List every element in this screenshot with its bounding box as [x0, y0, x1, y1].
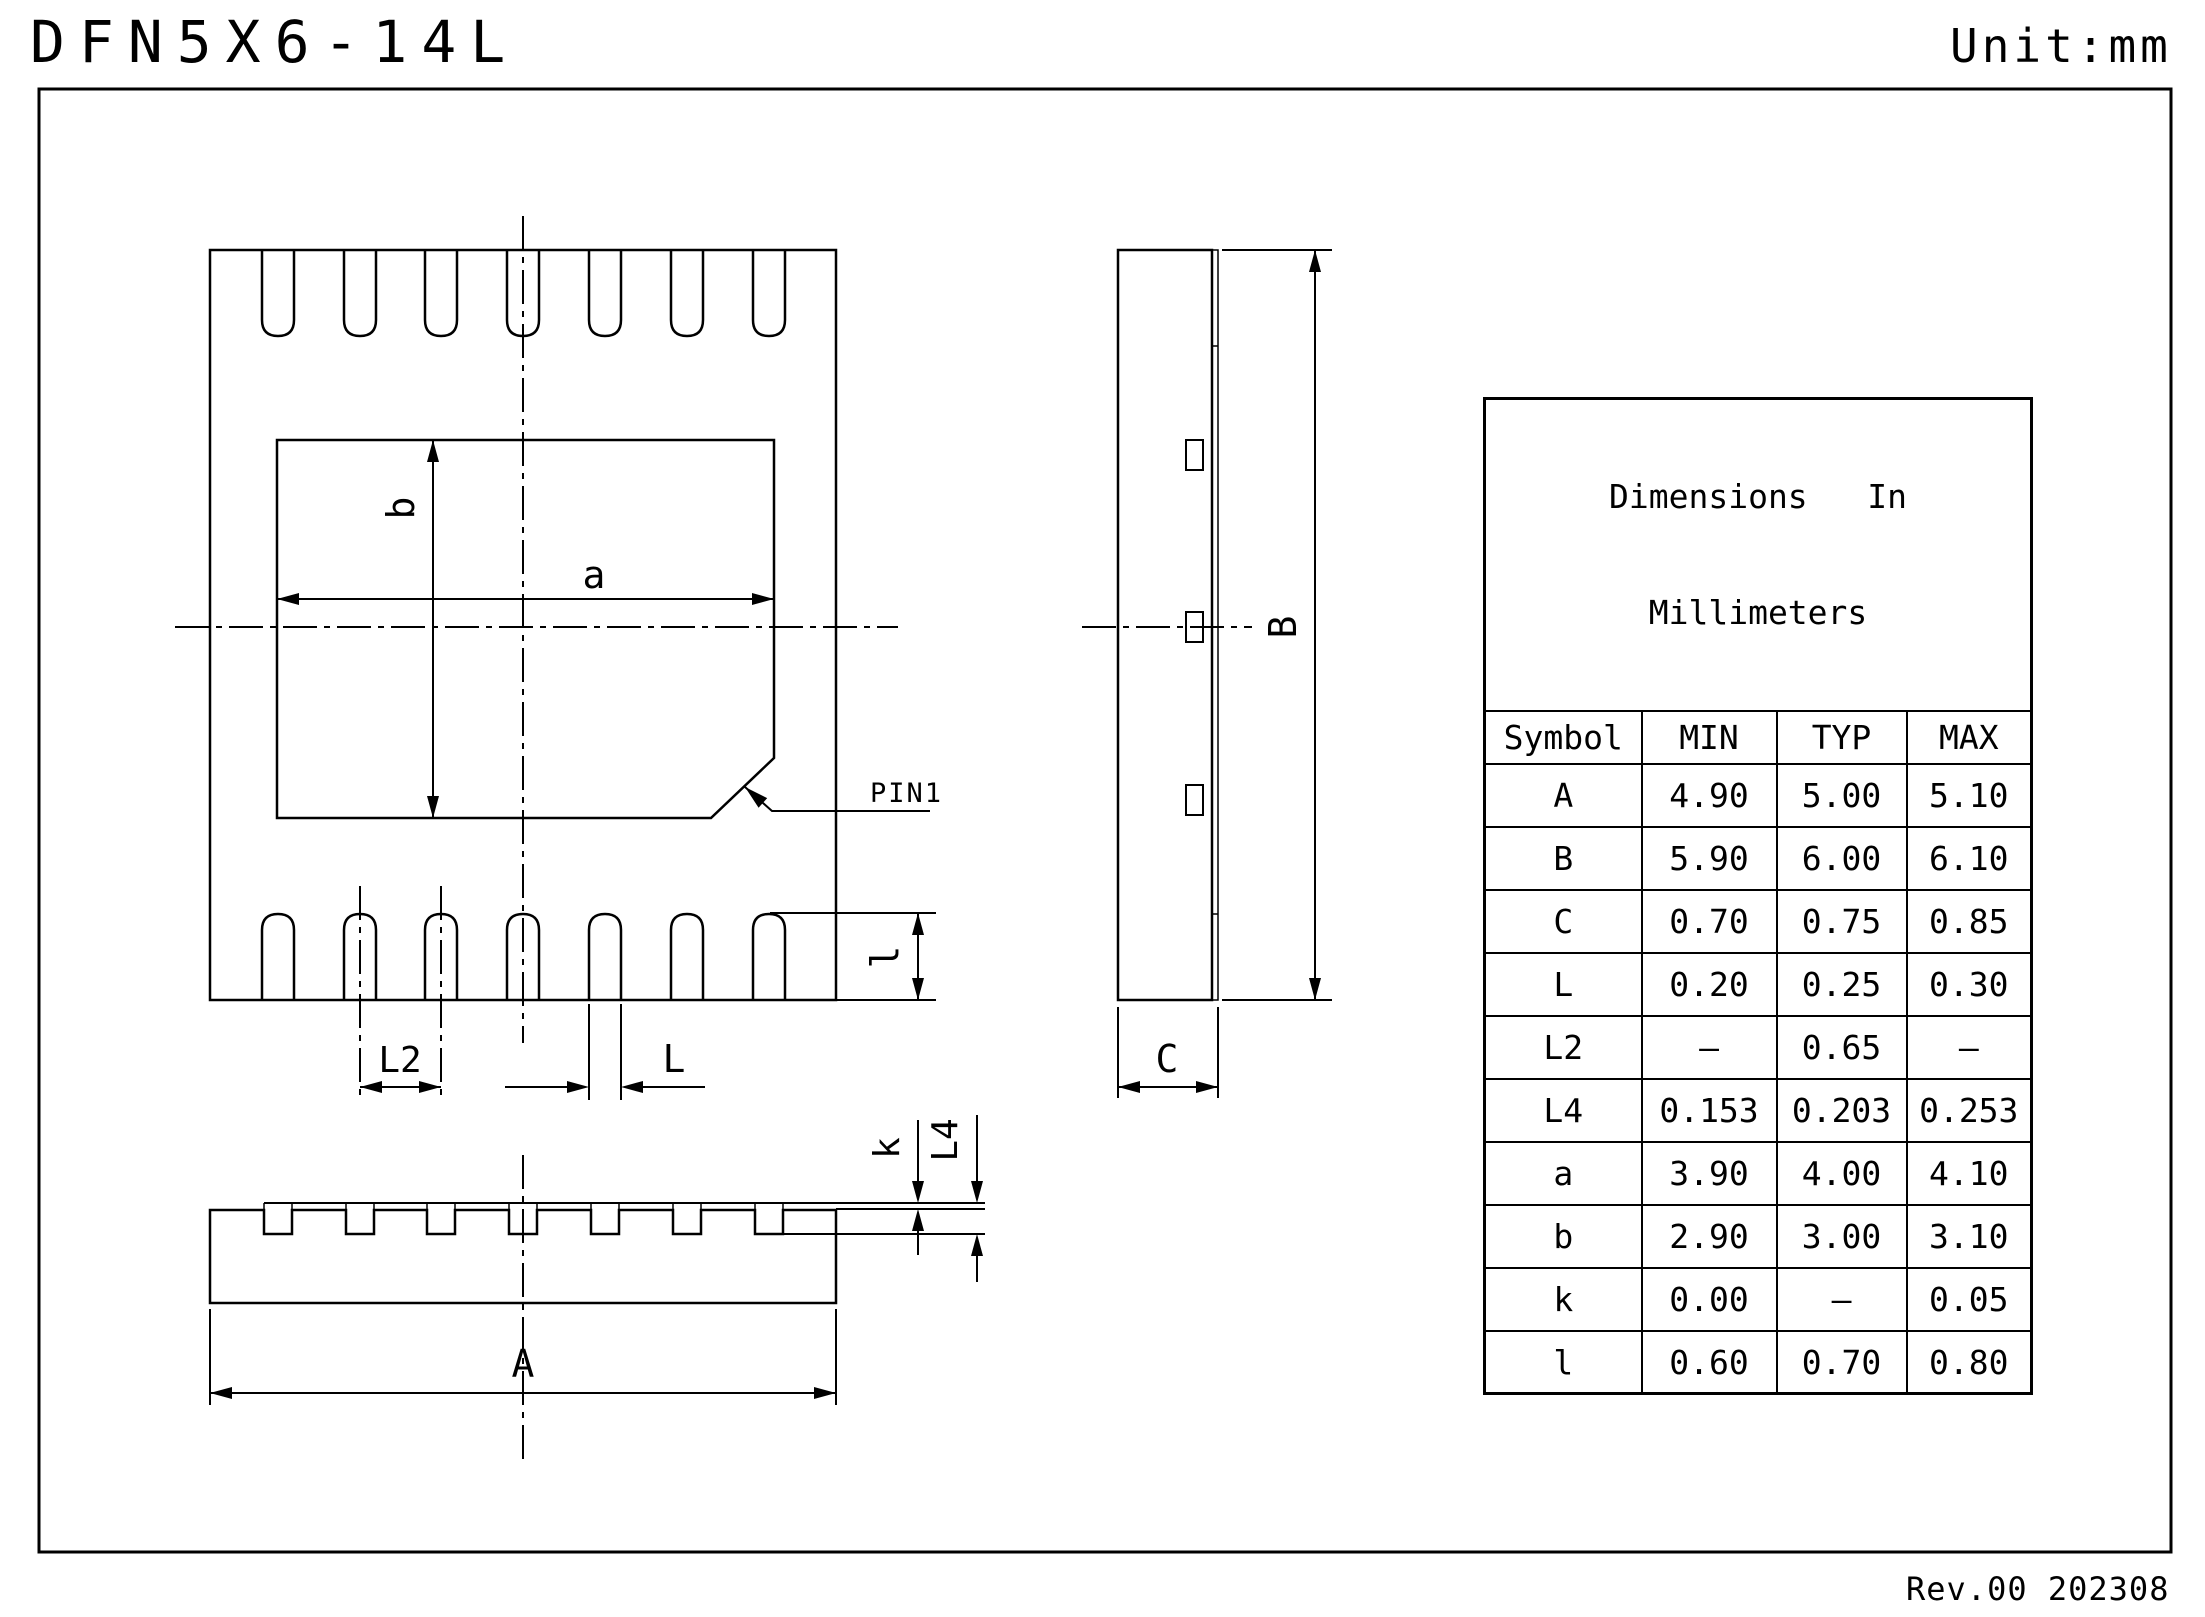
header-min: MIN	[1642, 711, 1777, 764]
dim-label-k: k	[867, 1137, 908, 1159]
cell-symbol: L	[1485, 953, 1642, 1016]
cell-max: 5.10	[1907, 764, 2032, 827]
dim-label-B: B	[1261, 616, 1305, 639]
cell-min: 0.70	[1642, 890, 1777, 953]
cell-max: 0.253	[1907, 1079, 2032, 1142]
dim-b-upper: B	[1222, 250, 1332, 1000]
cell-min: 0.60	[1642, 1331, 1777, 1394]
cell-symbol: l	[1485, 1331, 1642, 1394]
cell-typ: 5.00	[1777, 764, 1907, 827]
dim-label-l-width: L	[663, 1037, 686, 1081]
cell-typ: 0.203	[1777, 1079, 1907, 1142]
cell-symbol: b	[1485, 1205, 1642, 1268]
cell-max: 6.10	[1907, 827, 2032, 890]
cell-symbol: L4	[1485, 1079, 1642, 1142]
dim-b: b	[379, 440, 439, 818]
cell-typ: 6.00	[1777, 827, 1907, 890]
table-title-line2: Millimeters	[1486, 594, 2030, 632]
dim-l2: L2	[360, 1040, 441, 1093]
side-view: B C	[1082, 250, 1332, 1098]
table-row: k 0.00 – 0.05	[1485, 1268, 2032, 1331]
pin1-label: PIN1	[870, 778, 943, 809]
dim-label-b: b	[379, 497, 423, 520]
exposed-pad	[277, 440, 774, 818]
cell-min: 3.90	[1642, 1142, 1777, 1205]
cell-symbol: L2	[1485, 1016, 1642, 1079]
cell-min: 5.90	[1642, 827, 1777, 890]
dim-label-l-length: l	[863, 946, 907, 969]
cell-typ: 0.75	[1777, 890, 1907, 953]
table-title-line1: Dimensions In	[1486, 478, 2030, 516]
table-row: B 5.90 6.00 6.10	[1485, 827, 2032, 890]
table-header-row: Symbol MIN TYP MAX	[1485, 711, 2032, 764]
table-row: L 0.20 0.25 0.30	[1485, 953, 2032, 1016]
cell-min: 2.90	[1642, 1205, 1777, 1268]
pin1-callout: PIN1	[745, 778, 943, 811]
dim-l-width: L	[505, 1004, 705, 1100]
dim-label-C: C	[1156, 1037, 1179, 1081]
cell-min: 4.90	[1642, 764, 1777, 827]
dim-c: C	[1118, 1007, 1218, 1098]
dimensions-table: Dimensions In Millimeters Symbol MIN TYP…	[1483, 397, 2033, 1395]
cell-max: 0.05	[1907, 1268, 2032, 1331]
header-symbol: Symbol	[1485, 711, 1642, 764]
table-row: L4 0.153 0.203 0.253	[1485, 1079, 2032, 1142]
revision-label: Rev.00 202308	[1906, 1570, 2169, 1608]
table-row: b 2.90 3.00 3.10	[1485, 1205, 2032, 1268]
cell-min: –	[1642, 1016, 1777, 1079]
side-lead-profile	[1186, 440, 1203, 470]
table-title-row: Dimensions In Millimeters	[1485, 399, 2032, 711]
unit-label: Unit:mm	[1950, 19, 2172, 73]
cell-typ: –	[1777, 1268, 1907, 1331]
cell-typ: 3.00	[1777, 1205, 1907, 1268]
cell-symbol: a	[1485, 1142, 1642, 1205]
cell-max: 0.30	[1907, 953, 2032, 1016]
dim-l4: L4	[925, 1115, 983, 1282]
cell-max: 0.85	[1907, 890, 2032, 953]
datasheet-page: DFN5X6-14L Unit:mm Rev.00 202308	[0, 0, 2205, 1617]
cell-max: –	[1907, 1016, 2032, 1079]
cell-symbol: A	[1485, 764, 1642, 827]
table-title: Dimensions In Millimeters	[1485, 399, 2032, 711]
cell-typ: 0.65	[1777, 1016, 1907, 1079]
side-view-body	[1118, 250, 1212, 1000]
table-row: L2 – 0.65 –	[1485, 1016, 2032, 1079]
table-row: l 0.60 0.70 0.80	[1485, 1331, 2032, 1394]
header-max: MAX	[1907, 711, 2032, 764]
cell-min: 0.00	[1642, 1268, 1777, 1331]
cell-min: 0.153	[1642, 1079, 1777, 1142]
cell-symbol: C	[1485, 890, 1642, 953]
cell-max: 4.10	[1907, 1142, 2032, 1205]
side-lead-profile	[1186, 785, 1203, 815]
front-view: A k L4	[210, 1115, 985, 1465]
cell-max: 3.10	[1907, 1205, 2032, 1268]
top-view: a b L2 L	[175, 216, 943, 1100]
dim-l-length: l	[770, 913, 936, 1000]
dim-label-A: A	[512, 1342, 535, 1386]
table-row: a 3.90 4.00 4.10	[1485, 1142, 2032, 1205]
cell-typ: 0.25	[1777, 953, 1907, 1016]
table-row: A 4.90 5.00 5.10	[1485, 764, 2032, 827]
cell-min: 0.20	[1642, 953, 1777, 1016]
dim-label-l4: L4	[925, 1118, 966, 1161]
cell-typ: 4.00	[1777, 1142, 1907, 1205]
cell-symbol: B	[1485, 827, 1642, 890]
table-row: C 0.70 0.75 0.85	[1485, 890, 2032, 953]
dim-label-a: a	[583, 553, 606, 597]
dim-label-l2: L2	[378, 1040, 421, 1081]
cell-symbol: k	[1485, 1268, 1642, 1331]
cell-typ: 0.70	[1777, 1331, 1907, 1394]
page-title: DFN5X6-14L	[30, 8, 519, 76]
dim-a: a	[277, 553, 774, 605]
cell-max: 0.80	[1907, 1331, 2032, 1394]
header-typ: TYP	[1777, 711, 1907, 764]
